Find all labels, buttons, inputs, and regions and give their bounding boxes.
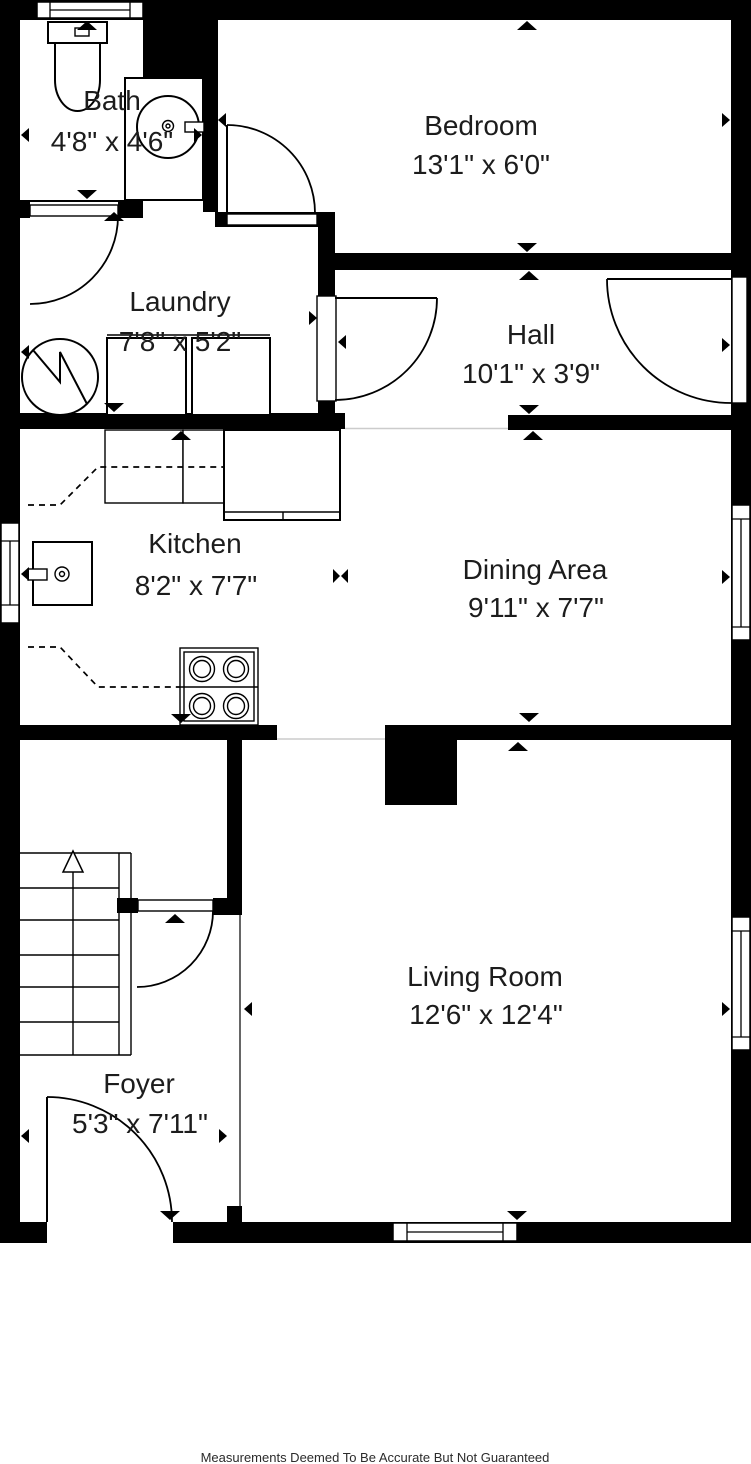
room-label-foyer: Foyer	[103, 1068, 175, 1099]
wall-bath-right	[203, 20, 218, 212]
window-bath-top	[37, 2, 143, 18]
wall-door-stub	[117, 898, 138, 913]
room-dims-bedroom: 13'1" x 6'0"	[412, 149, 550, 180]
room-label-living: Living Room	[407, 961, 563, 992]
wall-mid-left	[0, 725, 277, 740]
water-heater-icon	[22, 339, 98, 415]
floor-plan: Bath 4'8" x 4'6" Bedroom 13'1" x 6'0" La…	[0, 0, 751, 1464]
wall-rail-block	[227, 1206, 242, 1222]
wall-foyer-block	[213, 898, 242, 915]
refrigerator-icon	[224, 430, 340, 520]
disclaimer-text: Measurements Deemed To Be Accurate But N…	[201, 1450, 550, 1464]
wall-dining-top	[508, 415, 731, 430]
room-label-bedroom: Bedroom	[424, 110, 538, 141]
room-label-laundry: Laundry	[129, 286, 230, 317]
wall-bedroom-bottom	[335, 253, 731, 270]
room-dims-hall: 10'1" x 3'9"	[462, 358, 600, 389]
room-label-hall: Hall	[507, 319, 555, 350]
window-living-bottom	[393, 1223, 517, 1241]
chimney	[385, 725, 457, 805]
room-dims-bath: 4'8" x 4'6"	[51, 126, 173, 157]
wall-mid-right	[457, 725, 731, 740]
room-dims-dining: 9'11" x 7'7"	[468, 592, 604, 623]
wall-foyer-living	[227, 740, 242, 900]
room-dims-kitchen: 8'2" x 7'7"	[135, 570, 257, 601]
room-label-kitchen: Kitchen	[148, 528, 241, 559]
window-living-right	[732, 917, 750, 1050]
room-dims-laundry: 7'8" x 5'2"	[119, 326, 241, 357]
window-dining-right	[732, 505, 750, 640]
window-kitchen-left	[1, 523, 19, 623]
room-dims-living: 12'6" x 12'4"	[409, 999, 563, 1030]
room-dims-foyer: 5'3" x 7'11"	[72, 1108, 208, 1139]
stove-icon	[180, 648, 258, 725]
room-label-dining: Dining Area	[463, 554, 608, 585]
kitchen-sink-icon	[28, 542, 92, 605]
room-label-bath: Bath	[83, 85, 141, 116]
hall-door-opening	[317, 296, 336, 401]
front-door-opening	[47, 1222, 173, 1243]
entry-door-opening	[732, 277, 747, 403]
